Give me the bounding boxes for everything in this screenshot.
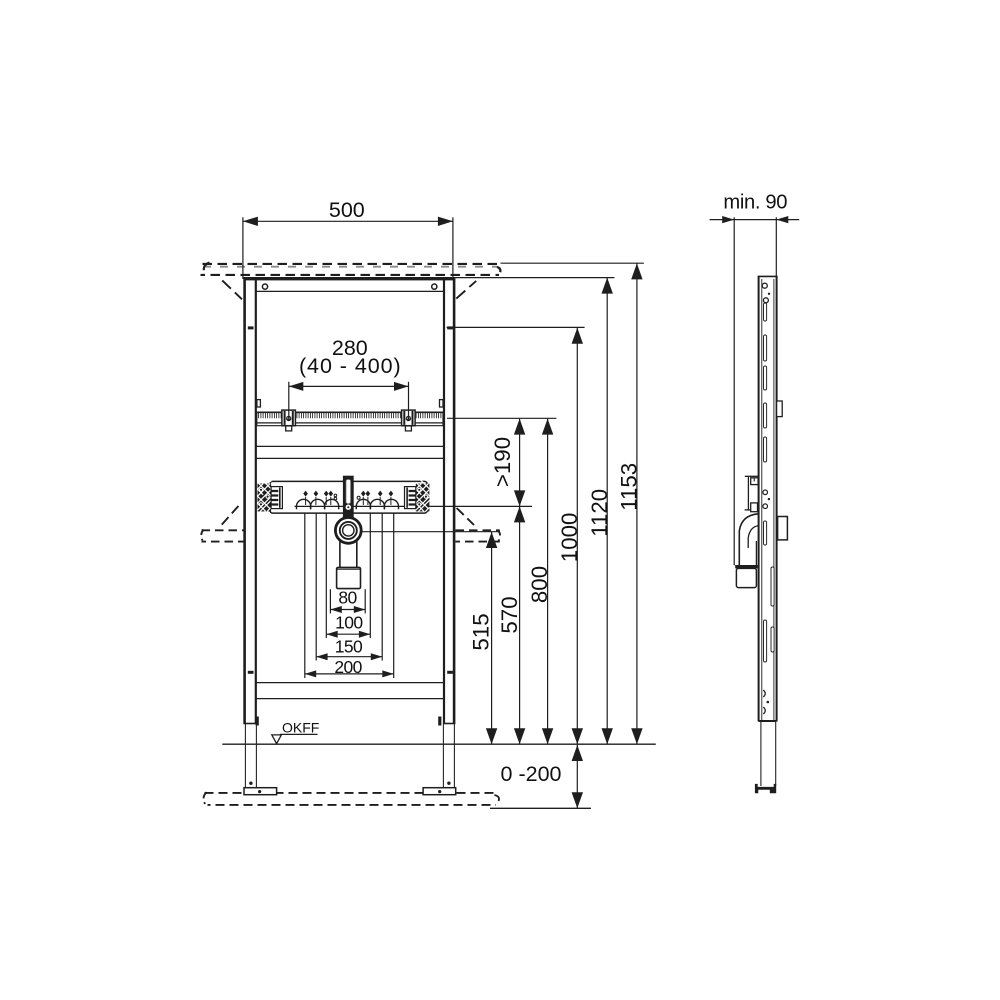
svg-text:100: 100 <box>335 613 363 633</box>
svg-text:150: 150 <box>335 637 363 657</box>
svg-text:(40 - 400): (40 - 400) <box>299 354 402 378</box>
svg-text:>190: >190 <box>490 437 515 487</box>
svg-text:OKFF: OKFF <box>282 720 319 736</box>
svg-text:80: 80 <box>338 588 357 608</box>
svg-text:200: 200 <box>334 657 362 677</box>
svg-text:min. 90: min. 90 <box>723 192 787 214</box>
svg-text:0 -200: 0 -200 <box>501 762 562 786</box>
svg-text:1120: 1120 <box>587 489 612 537</box>
svg-text:500: 500 <box>329 198 365 222</box>
svg-text:800: 800 <box>527 566 552 603</box>
svg-text:515: 515 <box>469 613 494 650</box>
svg-text:570: 570 <box>497 596 522 633</box>
svg-text:1000: 1000 <box>557 513 582 563</box>
svg-text:1153: 1153 <box>616 463 641 511</box>
